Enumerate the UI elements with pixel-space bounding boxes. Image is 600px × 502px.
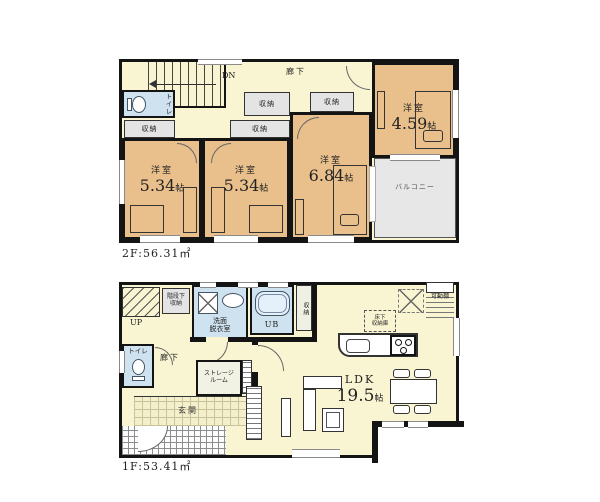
chair-icon xyxy=(414,405,431,414)
under-stair-storage: 階段下 収納 xyxy=(162,288,190,314)
area-label-2f: 2F:56.31㎡ xyxy=(122,245,191,261)
hallway-1f-label: 廊下 xyxy=(160,353,180,362)
sofa-icon xyxy=(303,389,316,431)
movable-shelf-label: 可動棚 xyxy=(431,293,449,300)
hallway-2f-label: 廊下 xyxy=(286,67,306,76)
storage-room-label: ストレージ ルーム xyxy=(204,371,234,385)
kitchen-sink-icon xyxy=(346,339,370,353)
entrance-porch xyxy=(122,426,226,455)
window xyxy=(308,235,354,243)
window xyxy=(452,90,459,138)
nightstand-icon xyxy=(183,187,197,233)
window xyxy=(200,282,216,288)
bathtub-icon xyxy=(255,291,290,316)
toilet-2f-label: トイレ xyxy=(164,93,171,116)
closet-2f-middle: 収納 xyxy=(230,120,290,138)
window xyxy=(140,235,180,243)
toilet-bowl-icon xyxy=(132,359,145,375)
closet-label: 収納 xyxy=(324,98,340,106)
closet-2f-room3: 収納 xyxy=(310,92,354,112)
closet-label: 収納 xyxy=(259,100,275,108)
room-2f-2: 洋室 5.34帖 xyxy=(202,138,290,240)
entrance-label: 玄関 xyxy=(178,406,198,415)
burner-icon xyxy=(395,339,402,346)
window xyxy=(408,421,428,428)
bathtub-inner xyxy=(258,294,287,313)
stair-arrow-head xyxy=(149,80,156,88)
window xyxy=(214,235,258,243)
under-stair-storage-label: 階段下 収納 xyxy=(167,294,185,308)
window xyxy=(119,160,125,204)
unit-bath: UB xyxy=(250,285,294,335)
desk-icon xyxy=(295,199,304,235)
kitchen-counter xyxy=(338,333,418,357)
tv-board-icon xyxy=(281,398,291,437)
door-arc xyxy=(258,345,284,371)
washer-icon xyxy=(198,292,218,314)
underfloor-storage: 床下 収納庫 xyxy=(364,310,396,332)
floor-2f-plan: DN 廊下 トイレ 収納 収納 収納 収納 収納 洋室 5.34帖 xyxy=(119,59,459,243)
area-label-1f: 1F:53.41㎡ xyxy=(122,458,191,474)
nightstand-icon xyxy=(211,187,225,233)
door-arc xyxy=(346,66,370,90)
bath-label: UB xyxy=(252,320,292,329)
door-arc xyxy=(177,143,197,163)
floorplan-canvas: DN 廊下 トイレ 収納 収納 収納 収納 収納 洋室 5.34帖 xyxy=(0,0,600,502)
closet-2f-hall: 収納 xyxy=(244,92,290,116)
room-2f-1: 洋室 5.34帖 xyxy=(122,138,202,240)
toilet-tank-icon xyxy=(132,376,145,381)
pillow-icon xyxy=(340,214,359,226)
up-label: UP xyxy=(130,318,142,327)
closet-label: 収納 xyxy=(252,125,268,133)
stair-arrow-line xyxy=(154,84,216,85)
ldk-size: 19.5 xyxy=(337,386,375,406)
balcony: バルコニー xyxy=(374,158,456,238)
room-2f-3: 洋室 6.84帖 xyxy=(290,112,372,240)
sink-icon xyxy=(222,293,244,308)
room-size: 5.34 xyxy=(140,176,176,195)
bed-icon xyxy=(130,205,164,233)
toilet-1f-room: トイレ xyxy=(122,344,154,388)
entrance-door-arc xyxy=(138,426,168,452)
window xyxy=(292,449,340,458)
room-size-unit: 帖 xyxy=(259,184,268,194)
chair-icon xyxy=(414,369,431,378)
interior-wall xyxy=(312,285,317,342)
toilet-2f-room: トイレ xyxy=(122,90,175,118)
shoe-cabinet-icon xyxy=(246,386,262,440)
dn-label: DN xyxy=(222,71,235,80)
stove-icon xyxy=(390,335,416,356)
window xyxy=(119,351,125,373)
floor-1f-plan: UP 階段下 収納 洗面 脱衣室 UB 収納 トイレ xyxy=(119,282,459,458)
room-2f-4: 洋室 4.59帖 xyxy=(372,62,456,158)
ldk-label: LDK 19.5帖 xyxy=(318,373,402,406)
burner-icon xyxy=(405,339,412,346)
toilet-bowl-icon xyxy=(132,96,146,113)
washroom-label: 洗面 脱衣室 xyxy=(194,317,246,333)
bed-icon xyxy=(333,165,367,235)
storage-room: ストレージ ルーム xyxy=(196,360,242,396)
door-arc xyxy=(297,117,319,139)
ldk-type: LDK xyxy=(318,373,402,386)
closet-1f-strip: 収納 xyxy=(296,285,312,331)
overhead-cabinet-icon xyxy=(398,289,424,313)
room-type: 洋室 xyxy=(125,163,199,176)
window xyxy=(453,318,460,356)
room-size: 5.34 xyxy=(224,176,260,195)
low-table-icon xyxy=(322,408,344,432)
balcony-door xyxy=(369,166,376,222)
window xyxy=(198,59,242,65)
closet-label: 収納 xyxy=(301,290,308,328)
door-arc xyxy=(211,143,231,163)
window xyxy=(390,154,440,161)
closet-2f-left: 収納 xyxy=(124,120,175,138)
underfloor-storage-label: 床下 収納庫 xyxy=(372,315,389,328)
chair-icon xyxy=(393,405,410,414)
staircase-up xyxy=(122,287,160,317)
low-table-inner xyxy=(326,412,340,428)
bed-icon xyxy=(415,91,451,149)
closet-label: 収納 xyxy=(142,125,158,133)
window xyxy=(238,282,258,288)
ldk-size-unit: 帖 xyxy=(374,394,383,404)
washroom: 洗面 脱衣室 xyxy=(192,285,248,339)
room-type: 洋室 xyxy=(205,163,287,176)
window xyxy=(382,421,404,428)
window xyxy=(268,282,288,288)
entrance-hall: 玄関 xyxy=(134,396,252,426)
balcony-label: バルコニー xyxy=(375,183,455,191)
desk-icon xyxy=(377,91,385,129)
toilet-1f-label: トイレ xyxy=(124,348,152,355)
movable-shelf-box: 可動棚 xyxy=(426,282,454,293)
burner-icon xyxy=(400,347,407,354)
bed-icon xyxy=(249,205,283,233)
pillow-icon xyxy=(423,130,443,142)
